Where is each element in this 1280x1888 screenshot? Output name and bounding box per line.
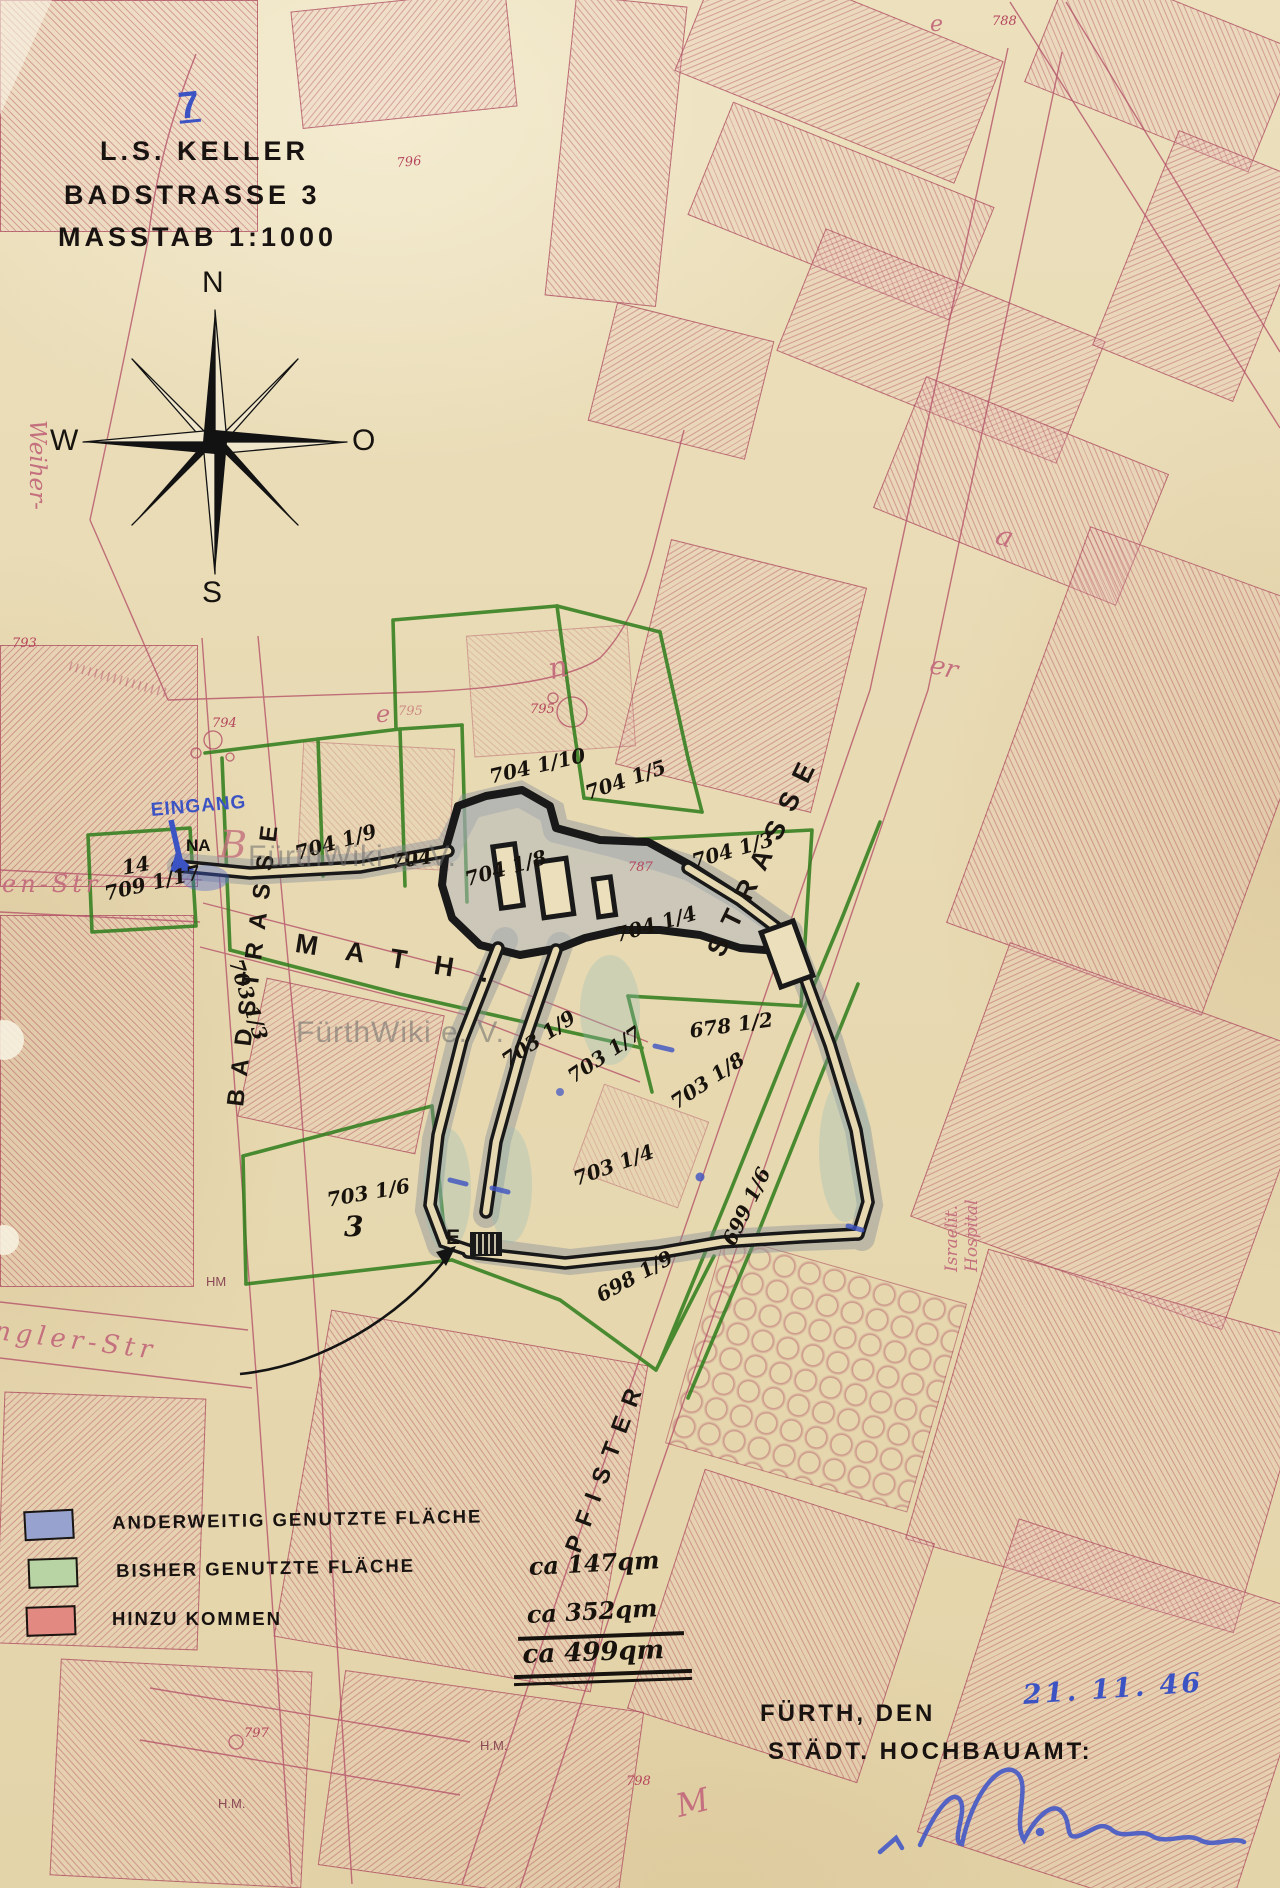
legend-swatch-green (27, 1557, 78, 1589)
hospital-name-1: Israelit. (942, 1199, 962, 1272)
compass-label-north: N (202, 266, 224, 300)
street-en-str: en-Str (2, 870, 101, 898)
house-number: 14 (120, 851, 152, 879)
legend-label-3: HINZU KOMMEN (112, 1608, 282, 1630)
compass-label-south: S (202, 576, 222, 610)
page-number: 7 (176, 84, 202, 129)
legend-swatch-blue (23, 1509, 75, 1542)
old-letter-b: B (218, 822, 248, 867)
title-line-2: BADSTRASSE 3 (64, 180, 321, 211)
old-letter-e2: e (930, 12, 943, 37)
hm-marker: H.M. (218, 1796, 245, 1811)
hospital-name-2: Hospital (962, 1199, 982, 1272)
survey-number: 795 (398, 704, 423, 719)
hm-marker: H.M. (480, 1738, 507, 1753)
watermark: FürthWiki e. V. (296, 1016, 505, 1050)
footer-office: STÄDT. HOCHBAUAMT: (768, 1738, 1093, 1766)
title-line-1: L.S. KELLER (100, 136, 309, 167)
hole-punches (0, 0, 52, 1255)
old-letter-e: e (376, 700, 390, 728)
survey-number: 796 (396, 154, 422, 171)
parcel-number: 3 (344, 1210, 363, 1243)
survey-number: 798 (626, 1774, 651, 1789)
hm-marker: HM (206, 1274, 226, 1289)
compass-label-east: O (352, 424, 375, 458)
legend-total-value: ca 499qm (522, 1635, 665, 1670)
signature (880, 1770, 1244, 1852)
na-label: NA (186, 836, 211, 856)
survey-number: 797 (244, 1726, 269, 1741)
survey-number: 787 (628, 860, 653, 875)
survey-number: 793 (12, 636, 37, 651)
entrance-e-label: E (446, 1226, 460, 1250)
survey-number: 788 (992, 14, 1017, 29)
watermark: FürthWiki e. V. (248, 840, 457, 874)
survey-number: 795 (530, 702, 555, 717)
compass-rose-icon (83, 310, 347, 574)
compass-label-west: W (50, 424, 78, 458)
legend-swatch-red (25, 1605, 76, 1637)
title-line-3: MASSTAB 1:1000 (58, 222, 337, 253)
street-weiher: Weiher- (24, 420, 50, 510)
footer-place-date: FÜRTH, DEN (760, 1700, 935, 1728)
hospital-name-wrap: Israelit. Hospital (942, 1199, 982, 1272)
scanned-site-plan: 7 L.S. KELLER BADSTRASSE 3 MASSTAB 1:100… (0, 0, 1280, 1888)
survey-number: 794 (212, 716, 237, 731)
